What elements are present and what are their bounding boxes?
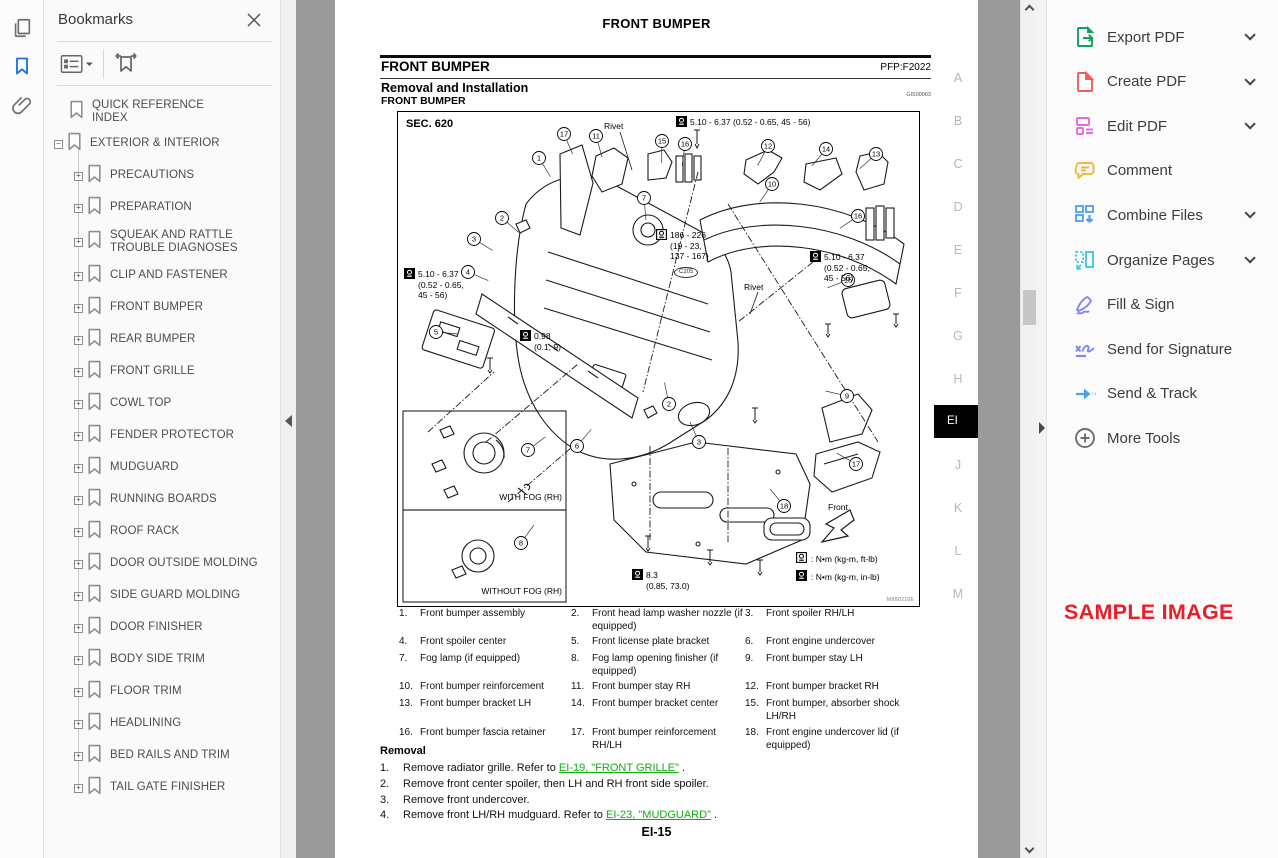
torque-spec-annotation: 5.10 - 6.37 (0.52 - 0.65, 45 - 56) [676, 117, 811, 128]
expand-node-icon[interactable]: + [74, 624, 83, 633]
bookmark-item-precautions[interactable]: +PRECAUTIONS [45, 160, 280, 192]
sample-image-watermark: SAMPLE IMAGE [1064, 600, 1234, 625]
step-number: 2. [380, 777, 403, 793]
expand-node-icon[interactable]: + [74, 752, 83, 761]
annotation-text: 186 - 226 (19 - 23, 137 - 167) [670, 230, 709, 262]
part-label: Front engine undercover [766, 636, 875, 651]
step-text: Remove front LH/RH mudguard. Refer to EI… [403, 808, 717, 824]
bookmark-label: SQUEAK AND RATTLE TROUBLE DIAGNOSES [110, 229, 260, 256]
bookmark-label: DOOR FINISHER [110, 621, 260, 635]
bookmark-ribbon-icon [87, 488, 102, 512]
pdf-viewer-window: Bookmarks [0, 0, 1278, 858]
bookmark-label: QUICK REFERENCE INDEX [92, 99, 242, 126]
tool-label: Send for Signature [1107, 341, 1232, 358]
cross-reference-link[interactable]: EI-19, "FRONT GRILLE" [559, 762, 679, 774]
bookmarks-icon[interactable] [9, 53, 35, 79]
torque-legend-row: : N•m (kg-m, in-lb) [796, 570, 880, 583]
bookmark-item-door-finisher[interactable]: +DOOR FINISHER [45, 612, 280, 644]
tool-combine-files[interactable]: Combine Files [1047, 198, 1278, 232]
collapse-left-panel-icon[interactable] [285, 415, 292, 427]
removal-section: Removal 1.Remove radiator grille. Refer … [380, 745, 931, 824]
expand-node-icon[interactable]: + [74, 496, 83, 505]
expand-node-icon[interactable]: + [74, 784, 83, 793]
bookmark-label: PRECAUTIONS [110, 169, 260, 183]
tool-export-pdf[interactable]: Export PDF [1047, 20, 1278, 54]
export-pdf-icon [1073, 25, 1097, 49]
subsubsection-heading: FRONT BUMPER [381, 95, 466, 107]
section-tab-f: F [943, 286, 973, 300]
vertical-scrollbar[interactable] [1020, 0, 1037, 858]
part-item: 13.Front bumper bracket LH [399, 698, 571, 725]
removal-step: 3.Remove front undercover. [380, 793, 931, 809]
page-number: EI-15 [335, 825, 978, 839]
annotation-text: Rivet [604, 121, 623, 132]
bookmark-item-clip-and-fastener[interactable]: +CLIP AND FASTENER [45, 260, 280, 292]
part-label: Front bumper stay LH [766, 653, 863, 679]
part-item: 15.Front bumper, absorber shock LH/RH [745, 698, 930, 725]
callout-leader-line [534, 437, 546, 446]
section-tab-l: L [943, 544, 973, 558]
torque-spec-annotation: 5.10 - 6.37 (0.52 - 0.65, 45 - 56) [404, 269, 464, 301]
callout-number: 10 [768, 180, 776, 189]
expand-node-icon[interactable]: + [74, 720, 83, 729]
bookmark-ribbon-icon [87, 456, 102, 480]
part-item: 6.Front engine undercover [745, 636, 930, 651]
part-label: Front bumper bracket center [592, 698, 718, 725]
bookmark-item-roof-rack[interactable]: +ROOF RACK [45, 516, 280, 548]
annotation-text: Rivet [744, 282, 763, 293]
step-text-plain: Remove front center spoiler, then LH and… [403, 778, 709, 790]
callout-number: 2 [500, 214, 504, 223]
bookmark-ribbon-icon [69, 100, 84, 124]
section-tab-b: B [943, 114, 973, 128]
callout-number: 12 [764, 142, 772, 151]
part-number: 12. [745, 681, 766, 696]
expand-node-icon[interactable]: + [74, 688, 83, 697]
section-tab-a: A [943, 71, 973, 85]
part-label: Front license plate bracket [592, 636, 709, 651]
callout-number: 17 [852, 460, 860, 469]
part-label: Front bumper bracket RH [766, 681, 879, 696]
create-pdf-icon [1073, 70, 1097, 94]
callout-number: 8 [519, 539, 523, 548]
running-header: FRONT BUMPER [335, 16, 978, 31]
tool-label: Create PDF [1107, 73, 1186, 90]
bookmark-item-body-side-trim[interactable]: +BODY SIDE TRIM [45, 644, 280, 676]
part-number: 2. [571, 608, 592, 634]
tool-organize-pages[interactable]: Organize Pages [1047, 243, 1278, 277]
part-item: 5.Front license plate bracket [571, 636, 745, 651]
section-tab-d: D [943, 200, 973, 214]
bookmark-ribbon-icon [67, 132, 82, 156]
expand-node-icon[interactable]: + [74, 368, 83, 377]
part-item: 12.Front bumper bracket RH [745, 681, 930, 696]
chevron-down-icon[interactable] [1244, 252, 1255, 263]
part-item: 3.Front spoiler RH/LH [745, 608, 930, 634]
callout-number: 11 [592, 132, 600, 141]
tool-label: Organize Pages [1107, 252, 1215, 269]
chevron-down-icon[interactable] [1244, 208, 1255, 219]
tool-comment[interactable]: Comment [1047, 154, 1278, 188]
tool-send-for-signature[interactable]: Send for Signature [1047, 332, 1278, 366]
expand-node-icon[interactable]: + [74, 560, 83, 569]
bookmark-item-exterior-interior[interactable]: −EXTERIOR & INTERIOR [45, 128, 280, 160]
annotation-text: 5.10 - 6.37 (0.52 - 0.65, 45 - 56) [824, 252, 870, 284]
scroll-up-icon[interactable] [1025, 5, 1035, 15]
expand-bookmarks-icon[interactable] [111, 49, 141, 79]
torque-inlb-icon [676, 116, 687, 127]
callout-number: 17 [560, 130, 568, 139]
exploded-diagram: 117111516121413101672341559236717188 SEC… [397, 111, 920, 607]
attachments-icon[interactable] [9, 92, 35, 118]
bookmark-ribbon-icon [87, 424, 102, 448]
expand-node-icon[interactable]: + [74, 464, 83, 473]
bookmarks-panel: Bookmarks [45, 0, 280, 858]
rivet-label: Rivet [744, 282, 763, 293]
bookmark-ribbon-icon [87, 520, 102, 544]
toolbar-separator [103, 49, 104, 79]
section-tab-j: J [943, 458, 973, 472]
part-label: Front bumper assembly [420, 608, 525, 634]
bookmark-ribbon-icon [87, 584, 102, 608]
part-label: Front bumper reinforcement [420, 681, 544, 696]
rule [380, 55, 931, 58]
part-number: 14. [571, 698, 592, 725]
close-icon[interactable] [246, 12, 264, 30]
part-number: 9. [745, 653, 766, 679]
callout-number: 16 [854, 212, 862, 221]
part-item: 14.Front bumper bracket center [571, 698, 745, 725]
bookmark-item-running-boards[interactable]: +RUNNING BOARDS [45, 484, 280, 516]
part-number: 11. [571, 681, 592, 696]
section-tab-active-ei: EI [934, 405, 978, 438]
part-item: 11.Front bumper stay RH [571, 681, 745, 696]
more-tools-icon [1073, 426, 1097, 450]
scroll-down-icon[interactable] [1025, 844, 1035, 854]
bookmark-label: EXTERIOR & INTERIOR [90, 137, 240, 151]
callout-number: 5 [434, 328, 438, 337]
tool-label: Edit PDF [1107, 118, 1167, 135]
subsection-heading: Removal and Installation [381, 81, 528, 95]
bookmarks-panel-title: Bookmarks [58, 11, 133, 28]
callout-number: 6 [575, 442, 579, 451]
expand-node-icon[interactable]: + [74, 204, 83, 213]
edit-pdf-icon [1073, 114, 1097, 138]
scrollbar-thumb[interactable] [1023, 290, 1036, 325]
bookmark-label: PREPARATION [110, 201, 260, 215]
part-label: Fog lamp (if equipped) [420, 653, 520, 679]
annotation-text: 0.98 (0.1, 9) [534, 331, 561, 352]
part-item: 2.Front head lamp washer nozzle (if equi… [571, 608, 745, 634]
expand-node-icon[interactable]: + [74, 592, 83, 601]
step-text-post: . [679, 762, 685, 774]
expand-node-icon[interactable]: + [74, 432, 83, 441]
step-number: 1. [380, 761, 403, 777]
part-label: Fog lamp opening finisher (if equipped) [592, 653, 745, 679]
annotation-text: C205 [674, 267, 698, 278]
part-item: 10.Front bumper reinforcement [399, 681, 571, 696]
annotation-text: 8.3 (0.85, 73.0) [646, 570, 689, 591]
bookmark-ribbon-icon [87, 328, 102, 352]
bookmark-label: COWL TOP [110, 397, 260, 411]
tool-label: Comment [1107, 162, 1172, 179]
left-icon-rail [0, 0, 44, 858]
bookmark-label: ROOF RACK [110, 525, 260, 539]
bookmark-item-rear-bumper[interactable]: +REAR BUMPER [45, 324, 280, 356]
tool-label: Send & Track [1107, 385, 1197, 402]
bookmark-item-front-grille[interactable]: +FRONT GRILLE [45, 356, 280, 388]
bookmark-ribbon-icon [87, 264, 102, 288]
expand-node-icon[interactable]: + [74, 400, 83, 409]
bookmark-ribbon-icon [87, 360, 102, 384]
bookmark-ribbon-icon [87, 230, 102, 254]
callout-number: 14 [822, 145, 830, 154]
torque-inlb-icon [520, 330, 531, 341]
tool-label: Combine Files [1107, 207, 1203, 224]
bookmark-item-squeak-and-rattle-trouble-diagnoses[interactable]: +SQUEAK AND RATTLE TROUBLE DIAGNOSES [45, 224, 280, 260]
tool-more-tools[interactable]: More Tools [1047, 421, 1278, 455]
part-label: Front spoiler center [420, 636, 506, 651]
torque-legend-row: : N•m (kg-m, ft-lb) [796, 552, 878, 565]
organize-pages-icon [1073, 248, 1097, 272]
diagram-sec-label: SEC. 620 [406, 118, 453, 130]
bookmark-label: CLIP AND FASTENER [110, 269, 260, 283]
bookmark-label: TAIL GATE FINISHER [110, 781, 260, 795]
callout-leader-line [474, 275, 488, 281]
tool-send-track[interactable]: Send & Track [1047, 377, 1278, 411]
pfp-code: PFP:F2022 [880, 62, 931, 73]
bookmarks-toolbar [45, 44, 280, 84]
bookmark-ribbon-icon [87, 680, 102, 704]
removal-heading: Removal [380, 745, 931, 757]
torque-ftlb-icon [796, 552, 807, 565]
part-item: 7.Fog lamp (if equipped) [399, 653, 571, 679]
bookmark-label: RUNNING BOARDS [110, 493, 260, 507]
tool-label: Fill & Sign [1107, 296, 1175, 313]
bookmark-options-icon[interactable] [60, 52, 94, 76]
bookmark-item-mudguard[interactable]: +MUDGUARD [45, 452, 280, 484]
section-tab-e: E [943, 243, 973, 257]
bookmark-item-side-guard-molding[interactable]: +SIDE GUARD MOLDING [45, 580, 280, 612]
part-label: Front bumper bracket LH [420, 698, 531, 725]
bookmark-ribbon-icon [87, 616, 102, 640]
step-number: 4. [380, 808, 403, 824]
part-number: 8. [571, 653, 592, 679]
rivet-label: Rivet [604, 121, 623, 132]
tool-edit-pdf[interactable]: Edit PDF [1047, 109, 1278, 143]
inset-with-fog-label: WITH FOG (RH) [458, 492, 562, 502]
torque-spec-annotation: 0.98 (0.1, 9) [520, 331, 561, 352]
bookmark-ribbon-icon [87, 196, 102, 220]
expand-node-icon[interactable]: + [74, 238, 83, 247]
part-number: 10. [399, 681, 420, 696]
collapse-node-icon[interactable]: − [54, 140, 63, 149]
bookmark-ribbon-icon [87, 712, 102, 736]
divider [57, 41, 272, 42]
callout-leader-line [543, 164, 551, 177]
expand-node-icon[interactable]: + [74, 272, 83, 281]
bookmark-label: SIDE GUARD MOLDING [110, 589, 260, 603]
cross-reference-link[interactable]: EI-23, "MUDGUARD" [606, 809, 711, 821]
callout-number: 16 [681, 140, 689, 149]
bookmark-item-headlining[interactable]: +HEADLINING [45, 708, 280, 740]
part-number: 1. [399, 608, 420, 634]
callout-number: 1 [537, 154, 541, 163]
bookmark-label: DOOR OUTSIDE MOLDING [110, 557, 260, 571]
bookmark-label: FENDER PROTECTOR [110, 429, 260, 443]
part-number: 3. [745, 608, 766, 634]
step-text: Remove front center spoiler, then LH and… [403, 777, 709, 793]
callout-leader-line [525, 525, 534, 537]
document-canvas: FRONT BUMPER FRONT BUMPER PFP:F2022 Remo… [296, 0, 1020, 858]
page-thumbnails-icon[interactable] [9, 15, 35, 41]
part-item: 4.Front spoiler center [399, 636, 571, 651]
bookmark-label: FRONT BUMPER [110, 301, 260, 315]
removal-step: 2.Remove front center spoiler, then LH a… [380, 777, 931, 793]
bookmark-label: HEADLINING [110, 717, 260, 731]
part-number: 7. [399, 653, 420, 679]
section-tab-k: K [943, 501, 973, 515]
bookmark-item-door-outside-molding[interactable]: +DOOR OUTSIDE MOLDING [45, 548, 280, 580]
part-item: 9.Front bumper stay LH [745, 653, 930, 679]
tool-label: Export PDF [1107, 29, 1185, 46]
part-label: Front spoiler RH/LH [766, 608, 854, 634]
step-text-plain: Remove front LH/RH mudguard. Refer to [403, 809, 606, 821]
figure-ref-code: GIS00063 [906, 92, 931, 98]
bookmark-ribbon-icon [87, 776, 102, 800]
parts-list: 1.Front bumper assembly2.Front head lamp… [399, 608, 930, 753]
bookmark-item-front-bumper[interactable]: +FRONT BUMPER [45, 292, 280, 324]
bookmark-item-cowl-top[interactable]: +COWL TOP [45, 388, 280, 420]
torque-inlb-icon [810, 251, 821, 262]
callout-number: 18 [780, 502, 788, 511]
part-item: 8.Fog lamp opening finisher (if equipped… [571, 653, 745, 679]
section-heading: FRONT BUMPER [381, 59, 490, 74]
collapse-right-panel-icon[interactable] [1039, 422, 1045, 434]
bookmark-item-floor-trim[interactable]: +FLOOR TRIM [45, 676, 280, 708]
section-tab-m: M [943, 587, 973, 601]
step-text: Remove radiator grille. Refer to EI-19, … [403, 761, 685, 777]
expand-node-icon[interactable]: + [74, 656, 83, 665]
section-tab-h: H [943, 372, 973, 386]
chevron-down-icon[interactable] [1244, 118, 1255, 129]
comment-icon [1073, 159, 1097, 183]
chevron-down-icon[interactable] [1244, 29, 1255, 40]
diagram-image-code: MIIB0216E [887, 597, 914, 603]
bookmark-item-preparation[interactable]: +PREPARATION [45, 192, 280, 224]
torque-spec-annotation: 8.3 (0.85, 73.0) [632, 570, 689, 591]
tool-label: More Tools [1107, 430, 1180, 447]
part-label: Front bumper stay RH [592, 681, 690, 696]
send-signature-icon [1073, 337, 1097, 361]
callout-leader-line [760, 190, 768, 202]
panel-splitter[interactable] [280, 0, 296, 858]
fill-sign-icon [1073, 293, 1097, 317]
callout-number: 4 [466, 268, 470, 277]
rule [380, 78, 931, 79]
callout-number: 13 [872, 150, 880, 159]
callout-number: 7 [526, 446, 530, 455]
part-number: 5. [571, 636, 592, 651]
legend-text: : N•m (kg-m, in-lb) [811, 572, 880, 582]
section-tab-c: C [943, 157, 973, 171]
bookmark-ribbon-icon [87, 552, 102, 576]
torque-ftlb-icon [656, 229, 667, 240]
bookmark-label: REAR BUMPER [110, 333, 260, 347]
bookmark-label: BED RAILS AND TRIM [110, 749, 260, 763]
torque-inlb-icon [796, 570, 807, 583]
step-number: 3. [380, 793, 403, 809]
part-label: Front bumper, absorber shock LH/RH [766, 698, 930, 725]
bookmark-item-tail-gate-finisher[interactable]: +TAIL GATE FINISHER [45, 772, 280, 804]
bookmark-ribbon-icon [87, 392, 102, 416]
bookmark-label: FRONT GRILLE [110, 365, 260, 379]
torque-spec-annotation: 5.10 - 6.37 (0.52 - 0.65, 45 - 56) [810, 252, 870, 284]
step-text: Remove front undercover. [403, 793, 530, 809]
annotation-text: 5.10 - 6.37 (0.52 - 0.65, 45 - 56) [690, 117, 811, 128]
part-number: 15. [745, 698, 766, 725]
step-text-plain: Remove radiator grille. Refer to [403, 762, 559, 774]
callout-number: 3 [697, 438, 701, 447]
part-label: Front head lamp washer nozzle (if equipp… [592, 608, 745, 634]
removal-step: 1.Remove radiator grille. Refer to EI-19… [380, 761, 931, 777]
torque-inlb-icon [404, 268, 415, 279]
tool-create-pdf[interactable]: Create PDF [1047, 65, 1278, 99]
expand-node-icon[interactable]: + [74, 172, 83, 181]
bookmark-item-quick-reference-index[interactable]: QUICK REFERENCE INDEX [45, 96, 280, 128]
section-tab-g: G [943, 329, 973, 343]
tool-fill-sign[interactable]: Fill & Sign [1047, 288, 1278, 322]
divider [57, 85, 272, 86]
bookmark-ribbon-icon [87, 744, 102, 768]
part-number: 6. [745, 636, 766, 651]
diagram-artwork: 117111516121413101672341559236717188 [398, 112, 918, 605]
legend-text: : N•m (kg-m, ft-lb) [811, 554, 878, 564]
step-text-plain: Remove front undercover. [403, 794, 530, 806]
chevron-down-icon[interactable] [1244, 74, 1255, 85]
bookmark-label: BODY SIDE TRIM [110, 653, 260, 667]
inset-without-fog-label: WITHOUT FOG (RH) [434, 586, 562, 596]
annotation-text: 5.10 - 6.37 (0.52 - 0.65, 45 - 56) [418, 269, 464, 301]
tools-panel: Export PDFCreate PDFEdit PDFCommentCombi… [1047, 0, 1278, 858]
part-number: 4. [399, 636, 420, 651]
step-text-post: . [711, 809, 717, 821]
send-track-icon [1073, 382, 1097, 406]
pdf-page: FRONT BUMPER FRONT BUMPER PFP:F2022 Remo… [335, 0, 978, 858]
bookmark-ribbon-icon [87, 296, 102, 320]
expand-node-icon[interactable]: + [74, 528, 83, 537]
callout-number: 15 [658, 137, 666, 146]
front-direction-label: Front [828, 502, 848, 512]
callout-leader-line [826, 391, 841, 394]
bookmark-label: MUDGUARD [110, 461, 260, 475]
part-item: 1.Front bumper assembly [399, 608, 571, 634]
torque-inlb-icon [632, 569, 643, 580]
part-number: 13. [399, 698, 420, 725]
combine-files-icon [1073, 203, 1097, 227]
bookmark-item-fender-protector[interactable]: +FENDER PROTECTOR [45, 420, 280, 452]
removal-step: 4.Remove front LH/RH mudguard. Refer to … [380, 808, 931, 824]
callout-number: 3 [472, 235, 476, 244]
connector-tag: C205 [674, 267, 698, 278]
right-panel-strip [1037, 0, 1047, 858]
expand-node-icon[interactable]: + [74, 336, 83, 345]
bookmark-item-bed-rails-and-trim[interactable]: +BED RAILS AND TRIM [45, 740, 280, 772]
expand-node-icon[interactable]: + [74, 304, 83, 313]
bookmark-label: FLOOR TRIM [110, 685, 260, 699]
callout-number: 9 [845, 392, 849, 401]
callout-number: 7 [642, 194, 646, 203]
